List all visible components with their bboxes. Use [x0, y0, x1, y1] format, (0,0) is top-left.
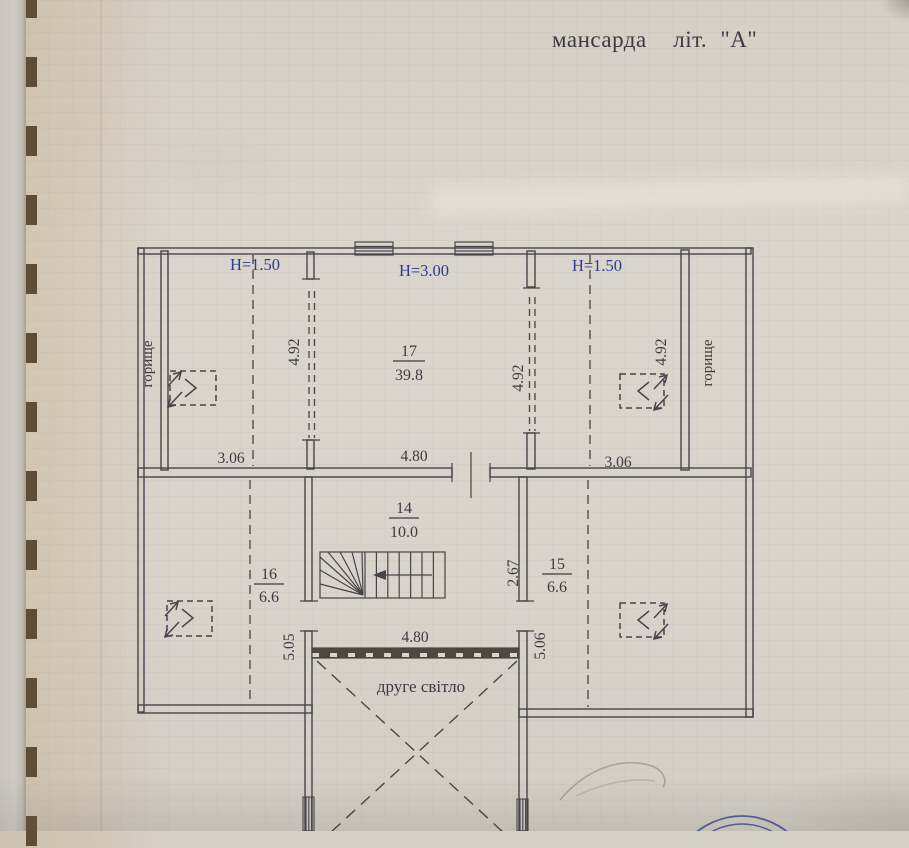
- left-wing-bottom-wall: [138, 705, 312, 713]
- dim-top-right: 3.06: [604, 454, 631, 471]
- signature-mark: [560, 763, 665, 800]
- dim-top-center: 4.80: [400, 448, 427, 465]
- dim-wing-right: 5.06: [532, 632, 549, 659]
- outer-wall-left: [138, 248, 144, 712]
- room14-number: 14: [396, 500, 412, 517]
- scanned-floorplan-page: { "title": "мансарда літ. \"А\"", "plan"…: [0, 0, 909, 831]
- height-label-left: H=1.50: [230, 255, 280, 274]
- room17-right-wall-top: [527, 251, 535, 287]
- dim-top-left: 3.06: [217, 450, 244, 467]
- stairs: [320, 552, 445, 598]
- dim-depth-center: 4.92: [510, 364, 527, 391]
- walls: [138, 248, 753, 831]
- dim-wing-left: 5.05: [281, 633, 298, 660]
- room17-left-wall-bottom: [307, 440, 314, 469]
- room15-area: 6.6: [547, 579, 567, 596]
- void-railing: [312, 648, 519, 658]
- dimension-labels: 3.06 4.80 3.06 4.80 4.92 4.92 4.92 2.67 …: [217, 338, 670, 660]
- room16-area: 6.6: [259, 589, 279, 606]
- dim-void-width: 4.80: [401, 629, 428, 646]
- hatch-icon-top-right: [620, 374, 668, 410]
- cross-wall-left-segment: [138, 468, 452, 477]
- outer-wall-right: [746, 248, 753, 717]
- hall-left-wall: [305, 477, 312, 601]
- floor-plan-drawing: H=1.50 H=3.00 H=1.50 17 39.8 14 10.0 16 …: [0, 0, 909, 831]
- hatch-icon-mid-right: [620, 603, 668, 639]
- attic-label-right: горище: [700, 339, 716, 386]
- room15-number: 15: [549, 556, 565, 573]
- outer-wall-top: [138, 248, 751, 254]
- hatch-icon-top-left: [168, 371, 216, 407]
- room17-number: 17: [401, 343, 417, 360]
- void-label: друге світло: [377, 677, 465, 696]
- room16-number: 16: [261, 566, 277, 583]
- stairs-arrow-head: [373, 570, 386, 580]
- low-dashed-walls: [309, 291, 535, 438]
- right-wing-bottom-wall: [519, 709, 753, 717]
- stamp-arc: [662, 816, 822, 831]
- height-label-right: H=1.50: [572, 256, 622, 275]
- hatch-icon-mid-left: [165, 601, 212, 637]
- room17-area: 39.8: [395, 367, 423, 384]
- attic-label-left: горище: [140, 340, 156, 387]
- room17-right-wall-bottom: [527, 433, 535, 469]
- room14-area: 10.0: [390, 524, 418, 541]
- attic-wall-left: [161, 251, 168, 470]
- height-labels: H=1.50 H=3.00 H=1.50: [230, 255, 622, 280]
- dim-depth-left: 4.92: [286, 338, 303, 365]
- dim-depth-right: 4.92: [653, 338, 670, 365]
- height-label-center: H=3.00: [399, 261, 449, 280]
- attic-wall-right: [681, 250, 689, 470]
- room17-left-wall-top: [307, 252, 314, 279]
- dim-hall-depth: 2.67: [505, 559, 522, 586]
